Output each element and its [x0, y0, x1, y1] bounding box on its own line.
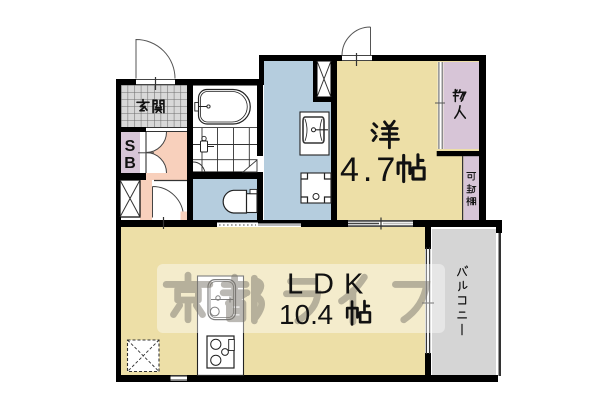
svg-text:B: B [124, 155, 136, 172]
svg-text:L: L [287, 269, 303, 301]
svg-text:4.7: 4.7 [340, 151, 399, 189]
svg-text:S: S [125, 138, 136, 155]
svg-text:4: 4 [318, 299, 334, 330]
svg-text:10.: 10. [279, 299, 318, 330]
svg-text:K: K [344, 269, 364, 301]
svg-text:D: D [313, 269, 334, 301]
